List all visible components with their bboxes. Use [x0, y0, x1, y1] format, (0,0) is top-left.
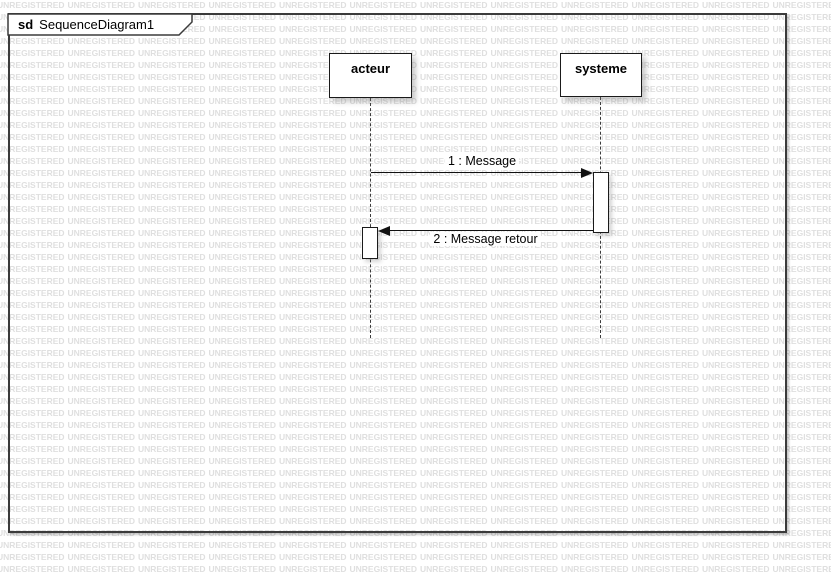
message-1-label[interactable]: 1 : Message: [371, 154, 593, 168]
watermark-row: UNREGISTEREDUNREGISTEREDUNREGISTEREDUNRE…: [0, 562, 831, 574]
watermark-row: UNREGISTEREDUNREGISTEREDUNREGISTEREDUNRE…: [0, 550, 831, 562]
message-2-label-text: 2 : Message retour: [430, 232, 540, 246]
activation-bar-acteur[interactable]: [362, 227, 378, 259]
lifeline-systeme-name: systeme: [575, 61, 627, 76]
lifeline-head-systeme[interactable]: systeme: [560, 53, 642, 97]
frame-title[interactable]: sdSequenceDiagram1: [18, 15, 154, 34]
watermark-row: UNREGISTEREDUNREGISTEREDUNREGISTEREDUNRE…: [0, 0, 831, 10]
message-2-label[interactable]: 2 : Message retour: [378, 232, 593, 246]
lifeline-head-acteur[interactable]: acteur: [329, 53, 412, 98]
watermark-row: UNREGISTEREDUNREGISTEREDUNREGISTEREDUNRE…: [0, 538, 831, 550]
lifeline-acteur-name: acteur: [351, 61, 390, 76]
diagram-canvas: UNREGISTEREDUNREGISTEREDUNREGISTEREDUNRE…: [0, 0, 831, 577]
frame-type-keyword: sd: [18, 17, 33, 32]
activation-bar-systeme[interactable]: [593, 172, 609, 233]
message-1-line[interactable]: [371, 172, 582, 173]
message-2-line[interactable]: [389, 230, 593, 231]
lifeline-acteur-dashed-line[interactable]: [370, 98, 371, 338]
message-1-label-text: 1 : Message: [445, 154, 519, 168]
message-1-arrowhead-icon: [581, 168, 593, 178]
frame-title-text: SequenceDiagram1: [39, 17, 154, 32]
